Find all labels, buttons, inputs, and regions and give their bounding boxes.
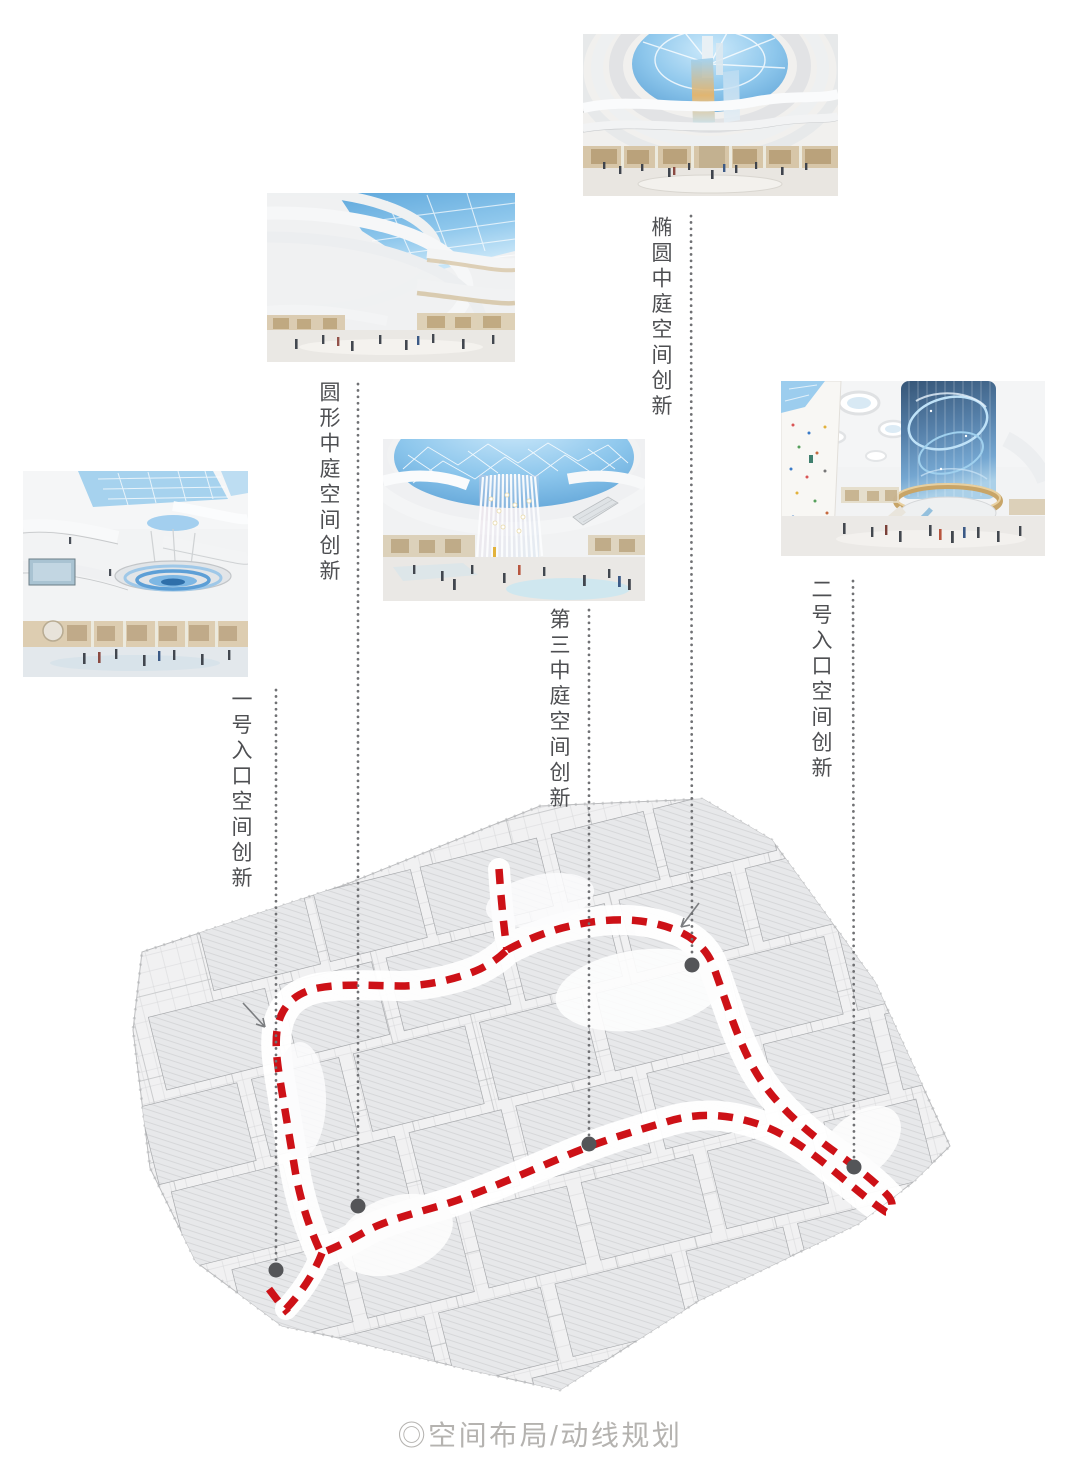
floor-plan bbox=[0, 0, 1080, 1475]
photo-entrance-1-atrium bbox=[23, 471, 248, 677]
label-circular-atrium: 圆形中庭空间创新 bbox=[315, 381, 341, 585]
page: 椭圆中庭空间创新 圆形中庭空间创新 一号入口空间创新 第三中庭空间创新 二号入口… bbox=[0, 0, 1080, 1475]
photo-elliptical-atrium bbox=[583, 34, 838, 196]
label-entrance-1: 一号入口空间创新 bbox=[227, 688, 253, 892]
photo-entrance-2-space bbox=[781, 381, 1045, 556]
label-entrance-2: 二号入口空间创新 bbox=[807, 578, 833, 782]
page-caption: ◎空间布局/动线规划 bbox=[0, 1414, 1080, 1454]
photo-circular-atrium bbox=[267, 193, 515, 362]
label-third-atrium: 第三中庭空间创新 bbox=[545, 608, 571, 812]
photo-third-atrium bbox=[383, 439, 645, 601]
label-elliptical-atrium: 椭圆中庭空间创新 bbox=[647, 216, 673, 420]
